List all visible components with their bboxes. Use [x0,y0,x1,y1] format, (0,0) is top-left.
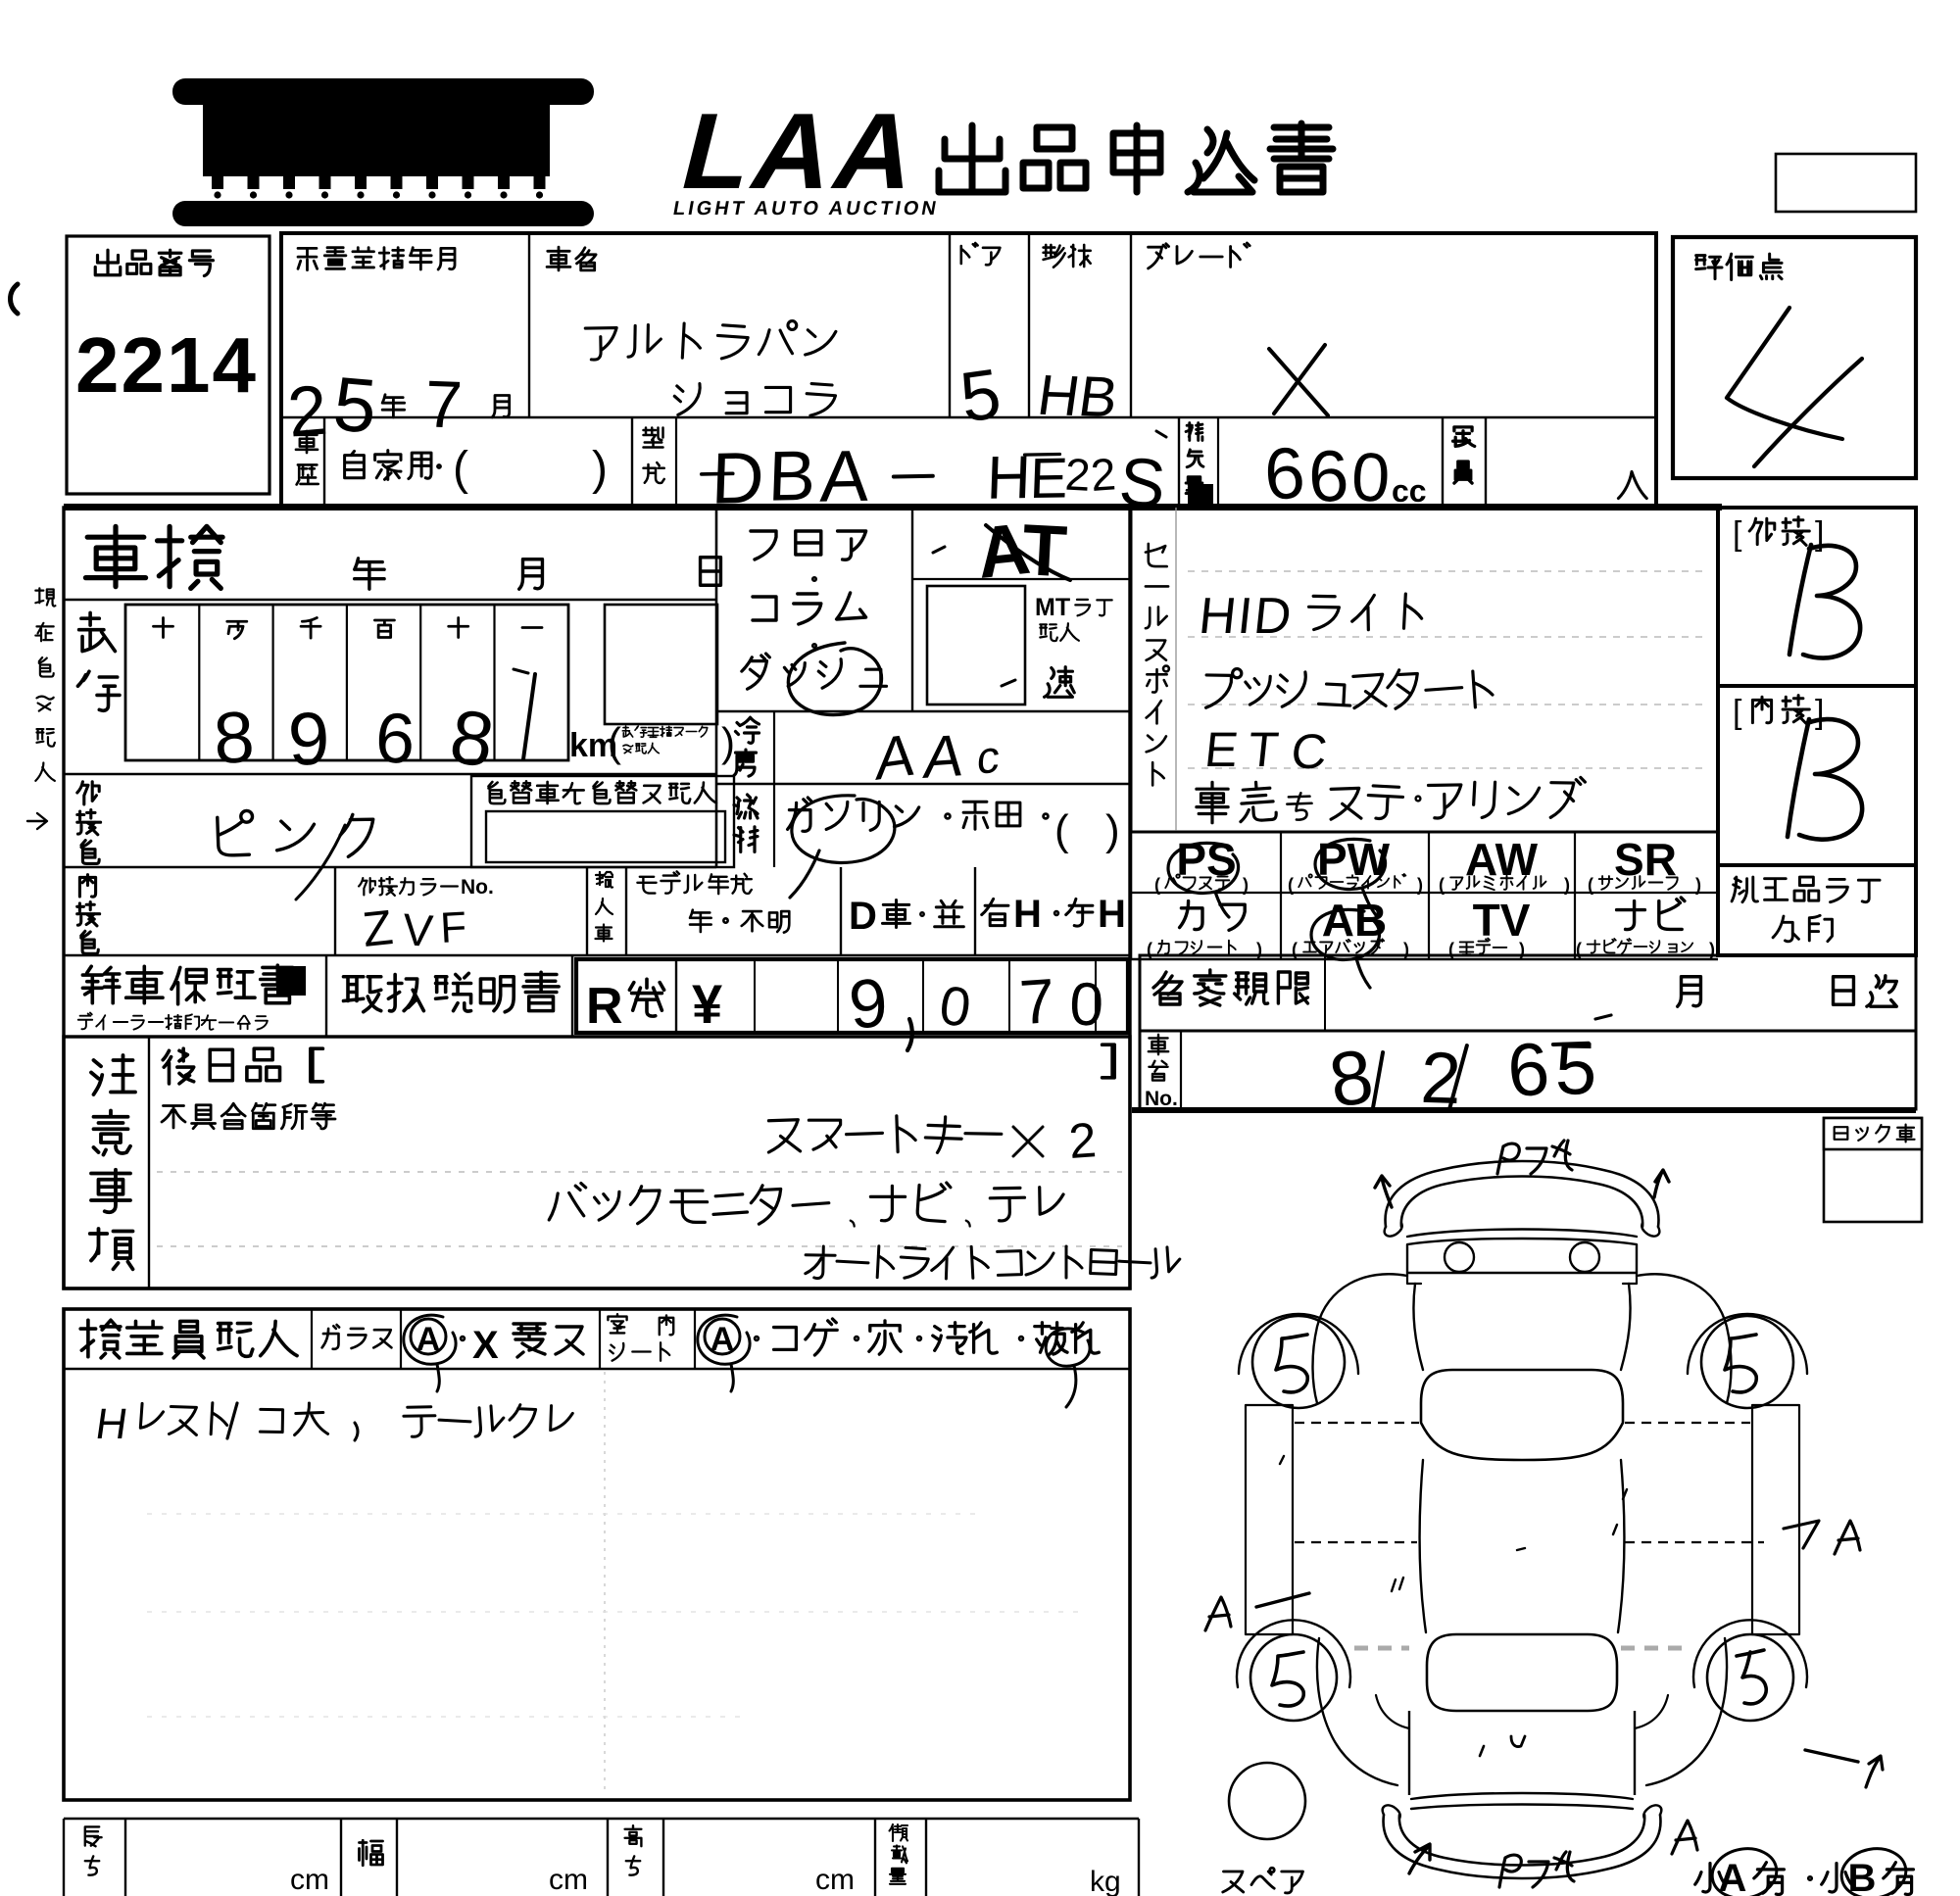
svg-text:X: X [472,1324,499,1367]
svg-text:9: 9 [846,964,891,1044]
svg-text:[: [ [1733,694,1742,731]
svg-text:): ) [1417,875,1423,895]
svg-text:C: C [1289,724,1330,779]
svg-text:A: A [710,1321,735,1358]
svg-text:6: 6 [1261,431,1307,515]
svg-text:A: A [416,1321,441,1358]
svg-text:): ) [1564,875,1570,895]
svg-text:A: A [875,720,917,793]
svg-text:[: [ [1733,515,1742,553]
svg-text:): ) [1105,806,1120,854]
svg-text:7: 7 [424,366,464,442]
svg-text:(: ( [1588,875,1593,895]
svg-text:cc: cc [1392,473,1427,509]
svg-text:T: T [1246,722,1281,777]
svg-text:MT: MT [1035,594,1070,621]
svg-text:]: ] [1815,694,1824,731]
svg-text:E: E [1202,722,1241,777]
svg-text:): ) [721,719,735,765]
svg-text:(: ( [1288,875,1294,895]
svg-text:cm: cm [549,1864,588,1896]
svg-text:(: ( [1054,806,1069,854]
svg-text:6: 6 [373,699,416,779]
svg-text:F: F [439,903,467,952]
svg-text:kg: kg [1090,1866,1121,1896]
svg-text:V: V [401,903,435,956]
svg-text:2: 2 [1067,1112,1099,1169]
svg-text:): ) [1695,875,1701,895]
svg-text:cm: cm [290,1864,329,1896]
svg-text:LAA: LAA [670,91,934,212]
svg-text:8: 8 [212,696,256,779]
svg-text:TV: TV [1473,895,1531,946]
svg-text:No.: No. [461,876,494,899]
svg-text:HB: HB [1034,364,1122,429]
svg-text:c: c [975,730,1002,784]
svg-text:AW: AW [1465,834,1539,885]
svg-text:LIGHT AUTO AUCTION: LIGHT AUTO AUCTION [671,198,941,219]
svg-text:2214: 2214 [75,321,258,409]
svg-text:(: ( [1439,875,1445,895]
svg-text:(: ( [453,443,468,495]
svg-text:5: 5 [330,360,380,449]
svg-text:): ) [592,443,608,495]
svg-text:7: 7 [1017,965,1057,1038]
svg-text:cm: cm [815,1864,855,1896]
svg-text:2: 2 [1089,448,1117,501]
svg-text:B: B [1848,1857,1877,1896]
svg-text:5: 5 [1554,1027,1597,1111]
svg-text:H: H [1098,893,1126,936]
svg-text:(: ( [1154,875,1160,895]
svg-text:A: A [921,721,968,791]
svg-text:H: H [1013,893,1042,936]
svg-text:0: 0 [1068,970,1104,1039]
svg-text:HID: HID [1197,588,1297,645]
svg-text:2: 2 [1064,449,1092,501]
svg-text:9: 9 [286,697,330,781]
svg-text:2: 2 [1419,1037,1462,1119]
svg-text:S: S [1116,443,1168,523]
svg-text:D: D [849,895,877,938]
svg-text:AB: AB [1322,895,1387,946]
svg-text:Z: Z [360,899,395,957]
svg-text:No.: No. [1145,1088,1178,1110]
svg-text:): ) [1243,875,1249,895]
svg-text:R: R [586,978,623,1035]
svg-text:(: ( [608,719,621,765]
svg-text:¥: ¥ [692,973,722,1035]
svg-text:A: A [1719,1857,1747,1896]
svg-text:6: 6 [1504,1027,1553,1113]
